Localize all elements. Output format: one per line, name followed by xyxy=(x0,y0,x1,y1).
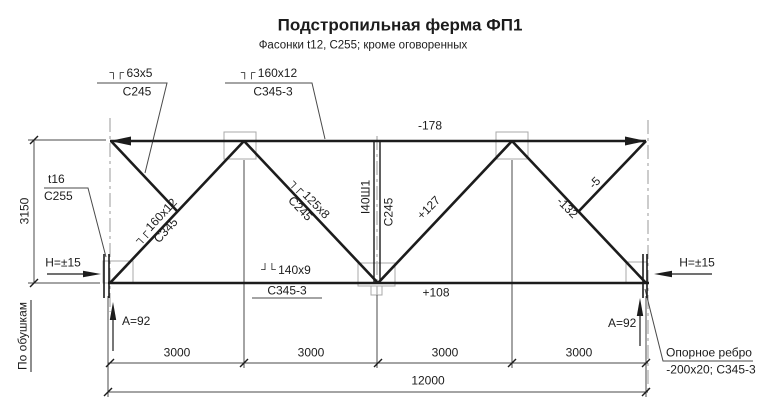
drawing-subtitle: Фасонки t12, С255; кроме оговоренных xyxy=(259,40,468,53)
dimension-note: По обушкам xyxy=(17,300,32,372)
dimension-total: 12000 xyxy=(411,375,444,388)
dimension-panel: 3000 xyxy=(298,347,325,360)
callout-bottom-chord-steel: С345-3 xyxy=(267,285,306,298)
force-bottom-chord: +108 xyxy=(422,287,449,300)
callout-gusset-steel: С255 xyxy=(44,190,73,203)
support-h-right: H=±15 xyxy=(679,257,715,270)
callout-top-left-profile: ┐┌ 63x5 xyxy=(110,67,153,81)
truss-drawing: Подстропильная ферма ФП1 Фасонки t12, С2… xyxy=(0,0,766,406)
drawing-title: Подстропильная ферма ФП1 xyxy=(278,19,523,32)
support-h-left: H=±15 xyxy=(45,257,81,270)
support-a-right: A=92 xyxy=(608,317,636,330)
a-arrow-right xyxy=(637,298,643,346)
callout-gusset-thickness: t16 xyxy=(48,173,65,186)
h-arrow-right xyxy=(654,271,712,277)
callout-bearing-rib-spec: -200x20; С345-3 xyxy=(666,364,755,377)
dimension-ticks xyxy=(30,136,650,396)
diagonal-mid-up xyxy=(378,141,512,283)
paired-angles-down-icon: ┘└ xyxy=(261,264,275,276)
member-label-vertical-profile: I40Ш1 xyxy=(360,180,373,214)
a-arrow-left xyxy=(110,302,116,351)
callout-bottom-chord-profile: ┘└ 140x9 xyxy=(261,264,311,278)
dimension-panel: 3000 xyxy=(164,347,191,360)
force-top-chord: -178 xyxy=(418,120,442,133)
dimension-panel: 3000 xyxy=(566,347,593,360)
paired-angles-icon: ┐┌ xyxy=(241,67,255,79)
dimension-height: 3150 xyxy=(19,198,32,225)
support-a-left: A=92 xyxy=(122,315,150,328)
callout-top-mid-steel: С345-3 xyxy=(253,86,292,99)
callout-top-left-steel: С245 xyxy=(123,86,152,99)
h-arrow-left xyxy=(47,271,101,277)
member-label-vertical-steel: С245 xyxy=(383,198,396,227)
paired-angles-icon: ┐┌ xyxy=(110,67,124,79)
diagonal-right-short xyxy=(579,141,646,211)
end-plate-right xyxy=(643,254,647,298)
dimension-panel: 3000 xyxy=(432,347,459,360)
callout-bearing-rib-name: Опорное ребро xyxy=(666,347,752,360)
callout-top-mid-profile: ┐┌ 160x12 xyxy=(241,67,297,81)
gusset-plate xyxy=(496,132,528,159)
